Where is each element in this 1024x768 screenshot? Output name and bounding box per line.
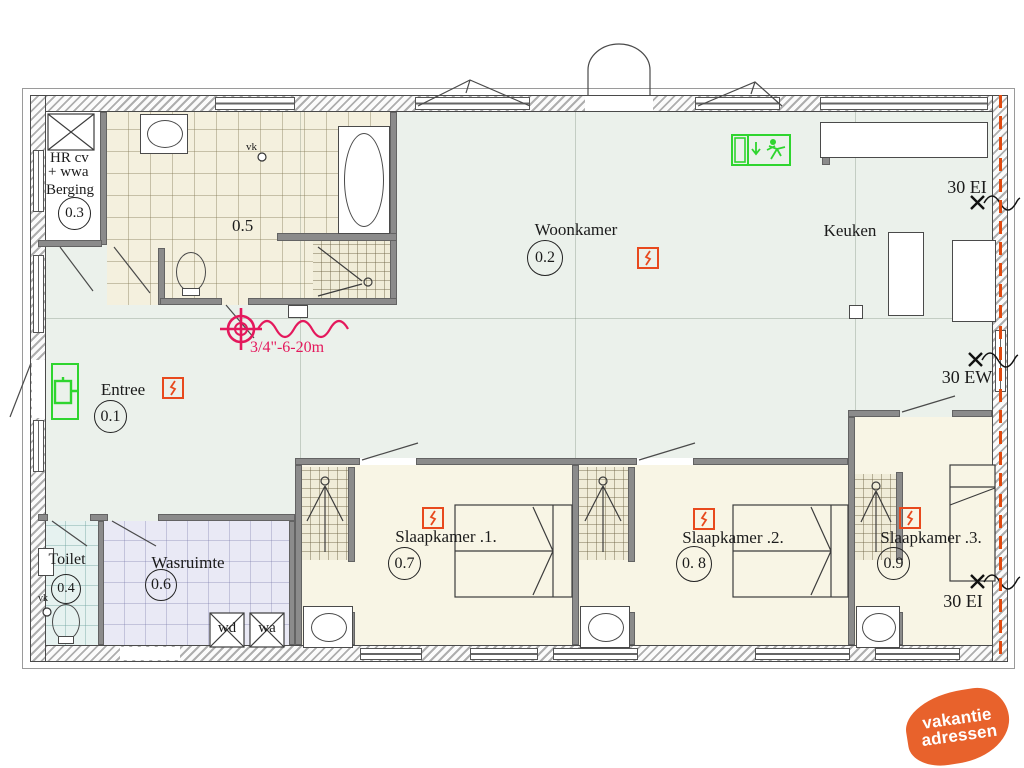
bathroom-wc-base — [182, 288, 200, 296]
wall — [38, 514, 48, 521]
room-number-berging: 0.3 — [58, 197, 91, 230]
window — [33, 255, 44, 333]
sink-basin — [588, 613, 624, 642]
window — [875, 648, 960, 660]
floor-entree-lower — [46, 458, 295, 521]
shower-tiles-bathroom — [313, 241, 390, 298]
label-30ei-bottom: 30 EI — [934, 591, 992, 612]
smoke-detector-icon — [162, 377, 184, 399]
label-slaapkamer-1: Slaapkamer .1. — [392, 528, 500, 547]
wall — [295, 465, 302, 645]
fire-extinguisher-icon — [51, 363, 79, 420]
fire-separation-line — [999, 95, 1002, 662]
wall — [98, 521, 104, 645]
bathroom-sink — [140, 114, 188, 154]
shower-tiles-bedroom-2 — [579, 467, 628, 560]
kitchen-counter — [820, 122, 988, 158]
wall — [693, 458, 848, 465]
shower-tiles-bedroom-1 — [302, 467, 348, 560]
window — [33, 420, 44, 472]
wall — [90, 514, 108, 521]
label-berging: Berging — [46, 182, 94, 199]
window — [470, 648, 538, 660]
wall — [348, 467, 355, 562]
kitchen-island — [888, 232, 924, 316]
bathtub — [338, 126, 390, 234]
sink-basin — [147, 120, 183, 148]
window — [553, 648, 638, 660]
wall — [295, 458, 360, 465]
wall — [572, 465, 579, 645]
label-30ew: 30 EW — [936, 367, 998, 388]
room-number-slaapkamer-3: 0.9 — [877, 547, 910, 580]
window — [360, 648, 422, 660]
wall — [248, 298, 397, 305]
sink-bedroom-3 — [856, 606, 900, 648]
wall — [100, 112, 107, 245]
label-entree: Entree — [98, 381, 148, 400]
label-fire-hose: 3/4"-6-20m — [250, 339, 324, 357]
label-wwa: + wwa — [48, 164, 89, 181]
emergency-exit-sign-icon — [731, 134, 791, 166]
label-30ei-top: 30 EI — [938, 177, 996, 198]
door-opening-top — [585, 96, 653, 111]
wall — [416, 458, 637, 465]
wall — [158, 514, 295, 521]
grid-line — [575, 112, 576, 458]
label-toilet: Toilet — [44, 551, 90, 569]
label-slaapkamer-3: Slaapkamer .3. — [877, 529, 985, 548]
sink-basin — [311, 613, 347, 642]
wall — [289, 521, 295, 645]
label-vk-toilet: vk — [38, 593, 48, 604]
label-woonkamer: Woonkamer — [520, 221, 632, 240]
smoke-detector-icon — [899, 507, 921, 529]
label-keuken: Keuken — [814, 222, 886, 241]
smoke-detector-icon — [637, 247, 659, 269]
wall — [38, 240, 102, 247]
room-number-wasruimte: 0.6 — [145, 569, 177, 601]
bathroom-wc — [176, 252, 206, 292]
grid-line — [300, 112, 301, 458]
label-vk-bathroom: vk — [246, 141, 257, 153]
sink-bedroom-2 — [580, 606, 630, 648]
window-kitchen — [820, 97, 988, 110]
sink-bedroom-1 — [303, 606, 353, 648]
window — [215, 97, 295, 110]
wall — [277, 233, 397, 241]
door-opening-left — [32, 360, 45, 418]
room-number-slaapkamer-2: 0. 8 — [676, 546, 712, 582]
vakantieadressen-logo: vakantie adressen — [901, 683, 1015, 768]
window — [755, 648, 850, 660]
wall — [390, 112, 397, 305]
kitchen-cabinet — [952, 240, 996, 322]
window — [33, 150, 44, 212]
label-slaapkamer-2: Slaapkamer .2. — [679, 529, 787, 548]
wall-stub — [288, 305, 308, 318]
room-number-toilet: 0.4 — [51, 574, 81, 604]
room-number-entree: 0.1 — [94, 400, 127, 433]
wall — [628, 467, 635, 562]
wall — [848, 417, 855, 645]
label-dryer: wd — [210, 620, 244, 637]
wall — [158, 248, 165, 305]
door-opening-bottom — [120, 647, 180, 660]
floor-plan: HR cv + wwa Berging 0.3 vk 0.5 Woonkamer… — [0, 0, 1024, 768]
smoke-detector-icon — [693, 508, 715, 530]
label-washer: wa — [250, 620, 284, 637]
kitchen-column — [849, 305, 863, 319]
room-number-woonkamer: 0.2 — [527, 240, 563, 276]
room-number-bathroom: 0.5 — [232, 217, 253, 236]
wall — [848, 410, 900, 417]
smoke-detector-icon — [422, 507, 444, 529]
window — [415, 97, 530, 110]
toilet-wc — [52, 604, 80, 640]
wall — [160, 298, 222, 305]
toilet-wc-base — [58, 636, 74, 644]
sink-basin — [862, 613, 896, 642]
room-number-slaapkamer-1: 0.7 — [388, 547, 421, 580]
window — [695, 97, 780, 110]
wall — [952, 410, 992, 417]
bathtub-basin — [344, 133, 384, 227]
